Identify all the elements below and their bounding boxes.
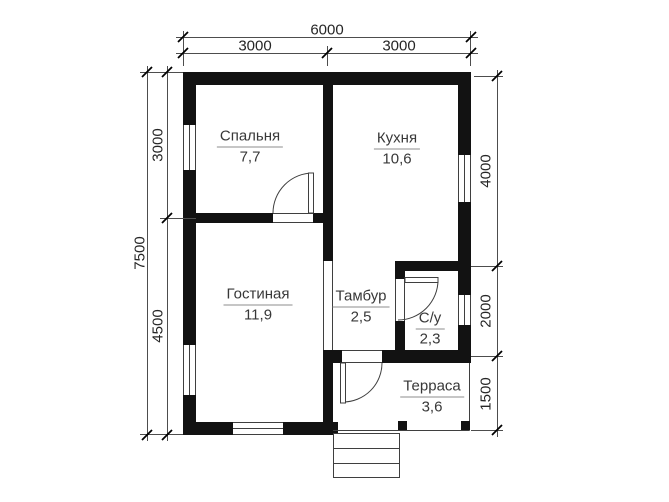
bathroom-door-leaf — [405, 278, 438, 283]
wall-bottom-left-segment — [183, 422, 233, 435]
room-area: 11,9 — [224, 307, 293, 325]
wall-tambour-bathroom-top-segment — [395, 261, 405, 279]
terrace-door — [341, 351, 383, 404]
living-bottom-window — [233, 422, 283, 435]
bathroom-window — [458, 295, 471, 325]
dim-label-width-left: 3000 — [238, 38, 271, 55]
wall-top — [183, 72, 471, 85]
dim-label-height-upper: 3000 — [150, 128, 167, 161]
opening-living-tambour — [324, 261, 333, 350]
dim-label-height-total: 7500 — [132, 236, 149, 269]
room-area: 3,6 — [400, 399, 464, 417]
wall-living-terrace — [323, 363, 333, 422]
terrace-post-corner — [461, 421, 470, 430]
dim-label-height-lower: 4500 — [150, 309, 167, 342]
room-name: Спальня — [217, 128, 283, 148]
bedroom-door-leaf — [309, 173, 314, 213]
room-area: 10,6 — [374, 151, 420, 169]
wall-bedroom-living-right-segment — [313, 213, 333, 223]
dim-label-right-kitchen: 4000 — [478, 154, 495, 187]
wall-bottom-right-segment — [283, 422, 338, 435]
room-area: 7,7 — [217, 149, 283, 167]
terrace-door-leaf — [341, 363, 346, 403]
room-label-kitchen: Кухня 10,6 — [374, 130, 420, 169]
dim-label-width-right: 3000 — [382, 38, 415, 55]
dim-label-width-total: 6000 — [310, 22, 343, 39]
room-name: Терраса — [400, 378, 464, 398]
room-label-tambour: Тамбур 2,5 — [333, 288, 390, 327]
kitchen-window — [458, 155, 471, 202]
wall-bedroom-living-left-segment — [196, 213, 273, 223]
room-name: Тамбур — [333, 288, 390, 308]
bedroom-door — [273, 173, 314, 223]
wall-tambour-bathroom-bottom-segment — [395, 321, 405, 363]
room-area: 2,5 — [333, 309, 390, 327]
room-name: Гостиная — [224, 286, 293, 306]
room-label-bedroom: Спальня 7,7 — [217, 128, 283, 167]
room-name: Кухня — [374, 130, 420, 150]
room-name: С/у — [416, 310, 445, 330]
terrace-post-middle — [398, 421, 407, 430]
bedroom-window — [183, 125, 196, 170]
room-label-terrace: Терраса 3,6 — [400, 378, 464, 417]
terrace-door-swing-arc — [343, 363, 382, 402]
floor-plan: Спальня 7,7 Кухня 10,6 Гостиная 11,9 Там… — [0, 0, 669, 502]
entrance-steps — [334, 434, 400, 478]
room-area: 2,3 — [416, 331, 445, 349]
dim-label-right-tambour: 2000 — [478, 294, 495, 327]
wall-bedroom-kitchen — [323, 85, 333, 261]
wall-tambour-bottom-left-segment — [323, 350, 342, 363]
room-label-bathroom: С/у 2,3 — [416, 310, 445, 349]
dim-label-right-terrace: 1500 — [478, 377, 495, 410]
floorplan-canvas — [0, 0, 669, 502]
bedroom-door-swing-arc — [273, 173, 313, 213]
room-label-living: Гостиная 11,9 — [224, 286, 293, 325]
living-left-window — [183, 345, 196, 395]
